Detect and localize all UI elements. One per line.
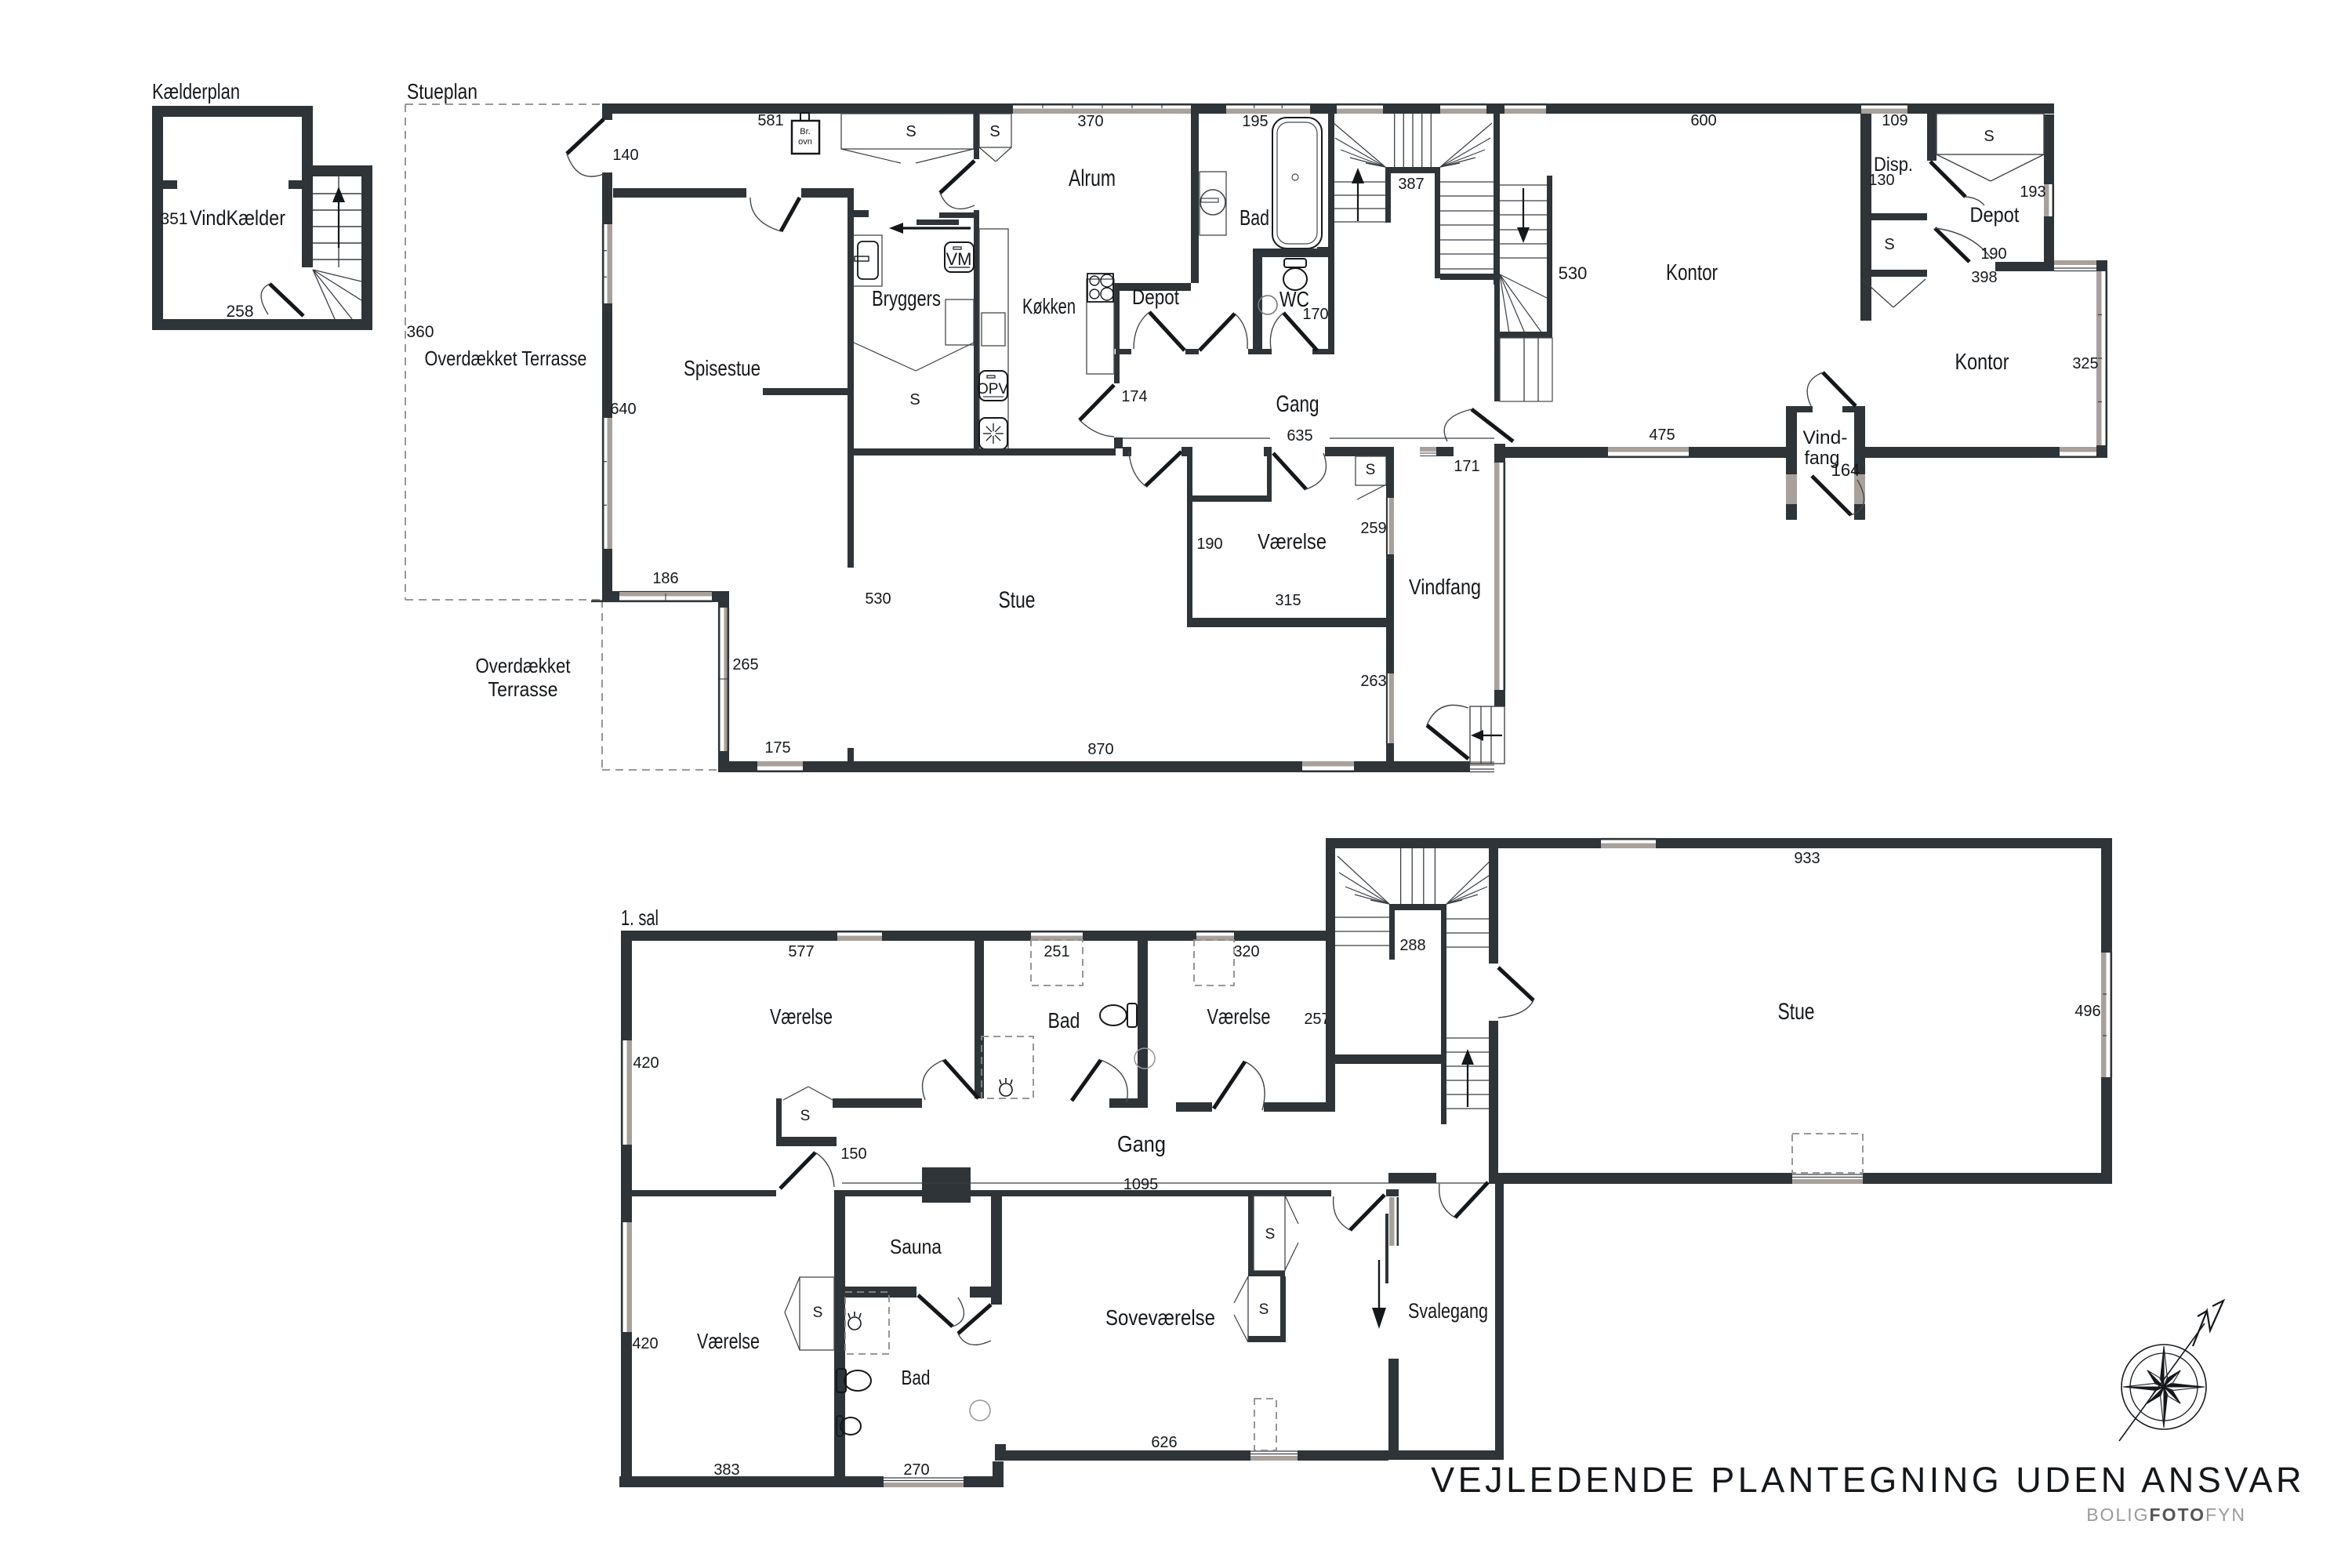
svg-text:496: 496 bbox=[2074, 1003, 2100, 1020]
svg-text:600: 600 bbox=[1690, 112, 1716, 129]
svg-text:S: S bbox=[989, 123, 1000, 140]
svg-text:Overdækket Terrasse: Overdækket Terrasse bbox=[425, 347, 587, 370]
svg-text:Kontor: Kontor bbox=[1666, 260, 1718, 285]
svg-text:626: 626 bbox=[1151, 1434, 1177, 1451]
svg-text:Alrum: Alrum bbox=[1069, 165, 1116, 191]
svg-text:VEJLEDENDE PLANTEGNING UDEN AN: VEJLEDENDE PLANTEGNING UDEN ANSVAR bbox=[1431, 1460, 2305, 1500]
svg-text:Bryggers: Bryggers bbox=[872, 286, 941, 310]
svg-text:S: S bbox=[1366, 462, 1376, 478]
svg-text:Vind-: Vind- bbox=[1803, 427, 1848, 448]
svg-text:933: 933 bbox=[1794, 850, 1820, 867]
svg-text:420: 420 bbox=[633, 1054, 659, 1072]
svg-text:351: 351 bbox=[160, 210, 187, 228]
svg-text:S: S bbox=[1884, 236, 1894, 253]
svg-text:S: S bbox=[800, 1108, 811, 1124]
svg-text:Spisestue: Spisestue bbox=[684, 356, 760, 380]
svg-text:Terrasse: Terrasse bbox=[488, 677, 558, 701]
svg-text:ovn: ovn bbox=[798, 137, 812, 147]
svg-text:1. sal: 1. sal bbox=[621, 906, 659, 930]
svg-text:130: 130 bbox=[1868, 172, 1894, 189]
svg-text:Kælderplan: Kælderplan bbox=[152, 79, 240, 103]
svg-text:577: 577 bbox=[788, 943, 814, 960]
svg-text:164: 164 bbox=[1831, 460, 1860, 480]
svg-text:174: 174 bbox=[1121, 388, 1147, 405]
svg-text:VindKælder: VindKælder bbox=[190, 206, 285, 230]
svg-text:Værelse: Værelse bbox=[1258, 529, 1327, 554]
svg-text:186: 186 bbox=[652, 570, 678, 587]
svg-text:170: 170 bbox=[1302, 306, 1328, 323]
svg-text:190: 190 bbox=[1196, 535, 1222, 553]
svg-text:320: 320 bbox=[1233, 943, 1259, 960]
svg-text:475: 475 bbox=[1649, 426, 1675, 444]
svg-text:258: 258 bbox=[226, 303, 253, 321]
svg-text:Stueplan: Stueplan bbox=[407, 79, 477, 103]
svg-text:270: 270 bbox=[903, 1461, 929, 1479]
svg-text:420: 420 bbox=[632, 1335, 658, 1352]
svg-text:S: S bbox=[1259, 1301, 1269, 1318]
svg-text:193: 193 bbox=[2020, 183, 2045, 201]
svg-text:530: 530 bbox=[1559, 263, 1588, 283]
svg-text:Br.: Br. bbox=[800, 127, 810, 136]
svg-text:870: 870 bbox=[1087, 741, 1113, 758]
svg-text:Sauna: Sauna bbox=[890, 1235, 942, 1258]
svg-text:Bad: Bad bbox=[1240, 205, 1269, 230]
svg-text:S: S bbox=[1265, 1226, 1276, 1243]
svg-text:640: 640 bbox=[610, 401, 636, 418]
svg-text:190: 190 bbox=[1980, 245, 2006, 263]
svg-text:265: 265 bbox=[732, 656, 758, 673]
svg-text:Køkken: Køkken bbox=[1022, 294, 1076, 318]
svg-text:Værelse: Værelse bbox=[697, 1329, 760, 1353]
svg-text:387: 387 bbox=[1398, 176, 1424, 193]
svg-text:Kontor: Kontor bbox=[1955, 350, 2009, 375]
svg-text:Bad: Bad bbox=[902, 1366, 931, 1389]
svg-text:S: S bbox=[813, 1305, 823, 1321]
svg-text:1095: 1095 bbox=[1123, 1176, 1159, 1193]
svg-text:Overdækket: Overdækket bbox=[476, 654, 572, 677]
svg-text:398: 398 bbox=[1971, 269, 1997, 286]
svg-text:360: 360 bbox=[406, 323, 434, 341]
svg-text:Stue: Stue bbox=[999, 587, 1036, 613]
svg-text:251: 251 bbox=[1044, 943, 1069, 960]
svg-text:OPV: OPV bbox=[977, 381, 1008, 397]
svg-text:140: 140 bbox=[612, 147, 638, 164]
svg-text:288: 288 bbox=[1399, 937, 1425, 954]
svg-text:Gang: Gang bbox=[1276, 391, 1319, 417]
svg-text:Depot: Depot bbox=[1132, 285, 1179, 309]
svg-text:259: 259 bbox=[1360, 520, 1386, 537]
svg-text:635: 635 bbox=[1287, 427, 1312, 445]
svg-text:VM: VM bbox=[946, 249, 972, 269]
svg-text:BOLIGFOTOFYN: BOLIGFOTOFYN bbox=[2086, 1504, 2246, 1525]
svg-text:175: 175 bbox=[764, 739, 790, 757]
svg-text:171: 171 bbox=[1454, 458, 1479, 475]
svg-text:S: S bbox=[909, 391, 920, 408]
svg-text:263: 263 bbox=[1360, 673, 1386, 690]
svg-text:Soveværelse: Soveværelse bbox=[1105, 1305, 1215, 1330]
svg-text:150: 150 bbox=[840, 1145, 866, 1163]
svg-text:530: 530 bbox=[865, 590, 891, 608]
svg-text:109: 109 bbox=[1882, 112, 1907, 129]
svg-text:195: 195 bbox=[1242, 113, 1268, 130]
svg-text:370: 370 bbox=[1077, 113, 1103, 130]
svg-text:Svalegang: Svalegang bbox=[1408, 1299, 1488, 1323]
svg-text:Bad: Bad bbox=[1048, 1008, 1080, 1033]
svg-text:325: 325 bbox=[2072, 355, 2098, 372]
svg-text:Værelse: Værelse bbox=[1207, 1004, 1271, 1029]
svg-text:383: 383 bbox=[713, 1461, 739, 1479]
svg-text:Vindfang: Vindfang bbox=[1409, 575, 1481, 599]
svg-text:315: 315 bbox=[1275, 592, 1301, 609]
svg-text:S: S bbox=[1984, 128, 1994, 145]
svg-text:Gang: Gang bbox=[1117, 1132, 1166, 1157]
svg-text:Værelse: Værelse bbox=[770, 1004, 833, 1029]
svg-text:Stue: Stue bbox=[1778, 999, 1815, 1025]
svg-text:581: 581 bbox=[757, 112, 783, 129]
svg-text:S: S bbox=[906, 123, 916, 140]
svg-text:Depot: Depot bbox=[1970, 203, 2020, 227]
